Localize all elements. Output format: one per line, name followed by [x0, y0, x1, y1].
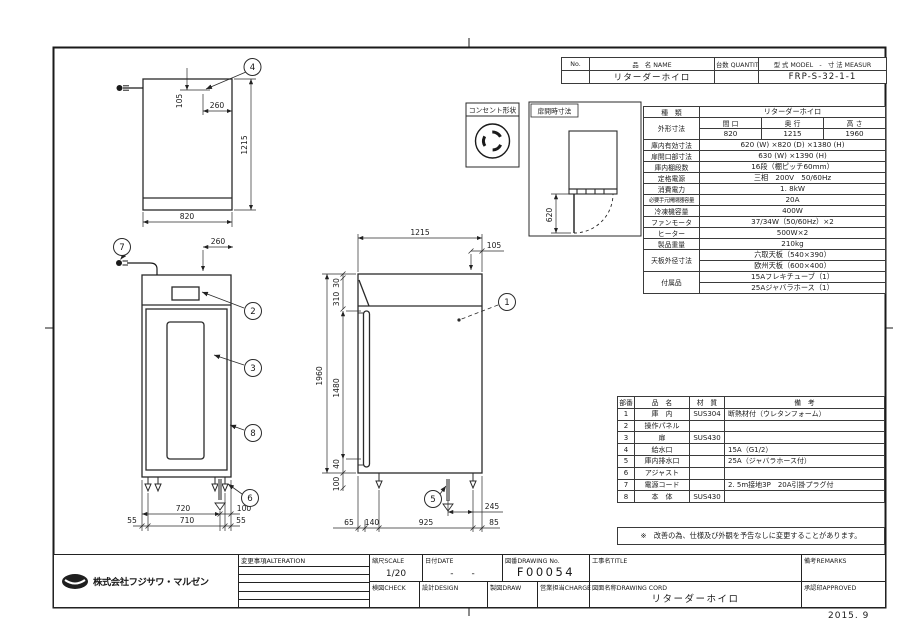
spec-row-value: 400W — [700, 205, 886, 216]
parts-row: 1庫 内 SUS304断熱材付（ウレタンフォーム） — [618, 408, 885, 420]
alteration-header: 変更事項ALTERATION — [239, 555, 369, 566]
date-label: 日付DATE — [425, 556, 453, 565]
spec-row-value: 20A — [700, 194, 886, 205]
spec-row-label: 庫内棚段数 — [644, 161, 700, 172]
model-no-value — [562, 71, 590, 84]
parts-remark-header: 備 考 — [725, 397, 885, 409]
alteration-row — [239, 599, 369, 607]
spec-top-plate-value1: 六取天板（540×390） — [700, 249, 886, 260]
drawing-name-label: 図面名称DRAWING CORD — [592, 583, 667, 592]
spec-width-value: 820 — [700, 129, 762, 140]
spec-row-label: 定格電源 — [644, 172, 700, 183]
approved-label: 承認印APPROVED — [804, 583, 856, 592]
design-label: 設計DESIGN — [422, 583, 458, 592]
svg-text:2: 2 — [250, 307, 255, 317]
scale-label: 縮尺SCALE — [372, 556, 404, 565]
spec-kind-value: リターダーホイロ — [700, 107, 886, 118]
parts-material-header: 材 質 — [690, 397, 725, 409]
spec-row-value: 630 (W) ×1390 (H) — [700, 150, 886, 161]
side-dim-40: 40 — [332, 459, 341, 469]
callout-8: 8 — [230, 425, 262, 442]
svg-text:5: 5 — [430, 495, 435, 505]
charge-cell: 営業担当CHARGE — [537, 582, 589, 608]
side-dim-140: 140 — [365, 518, 380, 527]
door-open-dim-620: 620 — [545, 208, 554, 223]
side-dim-925: 925 — [419, 518, 434, 527]
disclaimer-note: ※ 改善の為、仕様及び外観を予告なしに変更することがあります。 — [617, 527, 885, 545]
drawing-sheet: 105 260 1215 820 4 — [0, 0, 900, 636]
door-open-title: 扉開時寸法 — [538, 107, 572, 116]
plan-dim-105: 105 — [175, 94, 184, 109]
spec-row-value: 1. 8kW — [700, 183, 886, 194]
spec-row-value: 500W×2 — [700, 227, 886, 238]
plan-view: 105 260 1215 820 4 — [117, 59, 262, 228]
check-cell: 検図CHECK — [369, 582, 419, 608]
charge-label: 営業担当CHARGE — [540, 583, 591, 592]
company-logo — [61, 573, 89, 590]
svg-text:3: 3 — [250, 364, 255, 374]
svg-text:1: 1 — [504, 298, 509, 308]
front-dim-710: 710 — [180, 516, 195, 525]
callout-4: 4 — [206, 59, 261, 90]
parts-row: 4給水口 15A（G1/2） — [618, 444, 885, 456]
front-drain-pipe — [218, 479, 222, 500]
plan-dim-820: 820 — [180, 212, 195, 221]
spec-depth-header: 奥 行 — [762, 118, 824, 129]
callout-1: 1 — [457, 294, 515, 322]
parts-row: 6アジャスト — [618, 467, 885, 479]
side-dim-30: 30 — [332, 278, 341, 288]
parts-table: 部番 品 名 材 質 備 考 1庫 内 SUS304断熱材付（ウレタンフォーム）… — [617, 396, 885, 503]
spec-height-header: 高 さ — [824, 118, 886, 129]
side-dim-245: 245 — [485, 502, 500, 511]
company-name: 株式会社フジサワ・マルゼン — [93, 574, 209, 588]
spec-height-value: 1960 — [824, 129, 886, 140]
outlet-shape-title: コンセント形状 — [469, 106, 517, 115]
svg-text:6: 6 — [247, 494, 252, 504]
alteration-row — [239, 566, 369, 574]
spec-row-label: ヒーター — [644, 227, 700, 238]
parts-row: 5庫内排水口 25A（ジャバラホース付） — [618, 455, 885, 467]
plan-inlet-fitting-icon — [117, 85, 144, 91]
spec-accessory-value1: 15Aフレキチューブ（1） — [700, 271, 886, 282]
parts-row: 7電源コード 2. 5m接地3P 20A引掛プラグ付 — [618, 479, 885, 491]
spec-row-value: 620 (W) ×820 (D) ×1380 (H) — [700, 139, 886, 150]
drawing-no-label: 図番DRAWING No. — [505, 556, 560, 565]
plan-dim-1215: 1215 — [240, 135, 249, 154]
side-dim-85: 85 — [489, 518, 499, 527]
front-dim-260: 260 — [211, 237, 226, 246]
front-view: 260 720 100 55 710 55 7 2 3 — [114, 237, 262, 531]
design-cell: 設計DESIGN — [419, 582, 487, 608]
remarks-cell: 備考REMARKS — [801, 555, 885, 581]
front-dim-55-right: 55 — [236, 516, 246, 525]
model-no-header: No. — [562, 58, 590, 71]
spec-width-header: 間 口 — [700, 118, 762, 129]
side-dim-310: 310 — [332, 292, 341, 307]
door-open-box: 扉開時寸法 620 — [529, 102, 641, 236]
side-dim-1480: 1480 — [332, 378, 341, 397]
model-table: No. 品 名 NAME 台数 QUANTITY 型 式 MODEL - 寸 法… — [561, 57, 887, 84]
spec-outer-label: 外形寸法 — [644, 118, 700, 140]
svg-text:7: 7 — [119, 243, 124, 253]
approved-cell: 承認印APPROVED — [801, 582, 885, 608]
callout-6: 6 — [228, 484, 259, 507]
side-dim-1215: 1215 — [410, 228, 429, 237]
svg-text:4: 4 — [250, 63, 255, 73]
front-feet — [145, 477, 228, 491]
issue-date: 2015. 9 — [828, 611, 869, 621]
spec-accessory-value2: 25Aジャバラホース（1） — [700, 282, 886, 293]
spec-row-label: 消費電力 — [644, 183, 700, 194]
spec-kind-label: 種 類 — [644, 107, 700, 118]
spec-row-label: 冷凍機容量 — [644, 205, 700, 216]
front-dim-720: 720 — [176, 504, 191, 513]
project-title-label: 工事名TITLE — [592, 556, 627, 565]
alteration-column: 変更事項ALTERATION — [238, 555, 369, 607]
side-dim-65: 65 — [344, 518, 354, 527]
spec-depth-value: 1215 — [762, 129, 824, 140]
company-cell: 株式会社フジサワ・マルゼン — [54, 555, 238, 607]
front-power-cord-icon — [116, 260, 157, 275]
check-label: 検図CHECK — [372, 583, 406, 592]
alteration-row — [239, 574, 369, 582]
parts-row: 3扉 SUS430 — [618, 432, 885, 444]
disclaimer-note-text: ※ 改善の為、仕様及び外観を予告なしに変更することがあります。 — [641, 531, 862, 541]
model-model-value: FRP-S-32-1-1 — [759, 71, 887, 84]
parts-row: 8本 体 SUS430 — [618, 491, 885, 503]
parts-name-header: 品 名 — [635, 397, 690, 409]
spec-row-label: 必要手元開閉器容量 — [644, 194, 700, 205]
date-cell: 日付DATE - - — [422, 555, 502, 581]
spec-table: 種 類 リターダーホイロ 外形寸法 間 口 奥 行 高 さ 820 1215 1… — [643, 106, 886, 294]
parts-row: 2操作パネル — [618, 420, 885, 432]
alteration-row — [239, 582, 369, 590]
spec-row-label: 製品重量 — [644, 238, 700, 249]
spec-row-value: 三相 200V 50/60Hz — [700, 172, 886, 183]
side-dim-100: 100 — [332, 477, 341, 492]
plan-dim-260: 260 — [210, 101, 225, 110]
model-qty-value — [715, 71, 759, 84]
side-view: 1215 105 30 310 1960 1480 40 100 245 65 … — [315, 228, 516, 532]
spec-accessory-label: 付属品 — [644, 271, 700, 293]
draw-label: 製図DRAW — [490, 583, 521, 592]
side-drain-pipe — [446, 479, 450, 501]
callout-7: 7 — [114, 239, 131, 260]
model-model-header: 型 式 MODEL - 寸 法 MEASUR — [759, 58, 887, 71]
model-name-header: 品 名 NAME — [590, 58, 715, 71]
spec-row-label: ファンモータ — [644, 216, 700, 227]
model-name-value: リターダーホイロ — [590, 71, 715, 84]
spec-row-value: 16段（棚ピッチ60mm） — [700, 161, 886, 172]
outlet-shape-box: コンセント形状 — [466, 103, 519, 167]
front-drain-arrow — [215, 503, 225, 510]
parts-no-header: 部番 — [618, 397, 635, 409]
spec-top-plate-value2: 欧州天板（600×400） — [700, 260, 886, 271]
model-qty-header: 台数 QUANTITY — [715, 58, 759, 71]
spec-top-plate-label: 天板外径寸法 — [644, 249, 700, 271]
spec-row-value: 37/34W（50/60Hz）×2 — [700, 216, 886, 227]
front-dim-55-left: 55 — [127, 516, 137, 525]
scale-cell: 縮尺SCALE 1/20 — [369, 555, 422, 581]
project-title-cell: 工事名TITLE — [589, 555, 801, 581]
spec-row-label: 庫内有効寸法 — [644, 139, 700, 150]
callout-3: 3 — [214, 355, 262, 377]
side-dim-1960: 1960 — [315, 366, 324, 385]
remarks-label: 備考REMARKS — [804, 556, 846, 565]
side-dim-lines — [322, 234, 504, 532]
spec-row-label: 扉開口部寸法 — [644, 150, 700, 161]
title-block: 株式会社フジサワ・マルゼン 変更事項ALTERATION 縮尺SCALE 1/2… — [53, 554, 886, 608]
svg-text:8: 8 — [250, 429, 255, 439]
alteration-row — [239, 591, 369, 599]
spec-row-value: 210kg — [700, 238, 886, 249]
side-feet — [376, 473, 476, 488]
drawing-name-cell: 図面名称DRAWING CORD リターダーホイロ — [589, 582, 801, 608]
callout-2: 2 — [202, 292, 262, 320]
side-dim-105: 105 — [487, 241, 502, 250]
draw-cell: 製図DRAW — [487, 582, 537, 608]
drawing-no-cell: 図番DRAWING No. F00054 — [502, 555, 589, 581]
